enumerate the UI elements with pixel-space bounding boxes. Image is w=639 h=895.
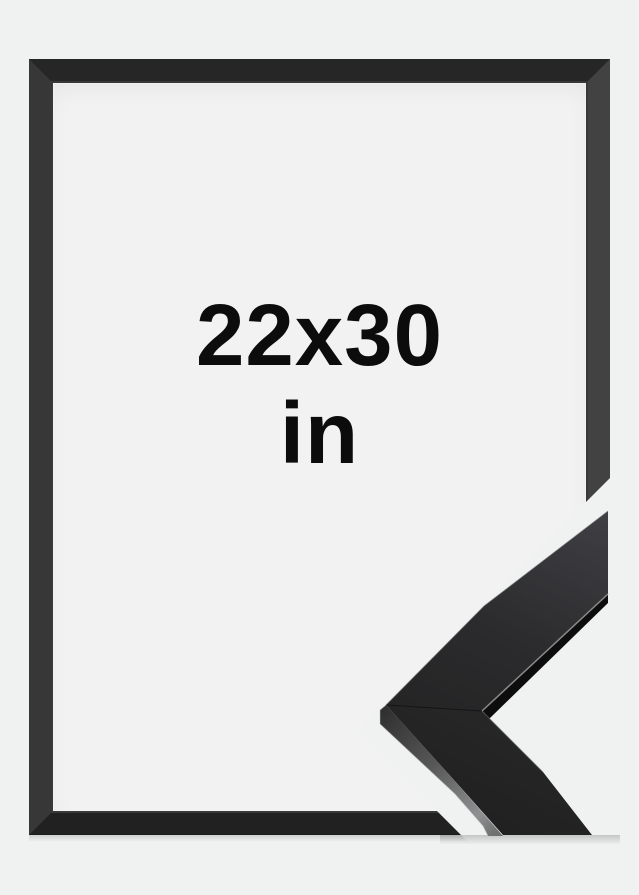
frame-drop-shadow: [29, 834, 610, 842]
product-image: 22x30 in: [0, 0, 639, 895]
size-caption: 22x30 in: [0, 287, 639, 483]
size-dimensions-text: 22x30: [0, 287, 639, 385]
size-unit-text: in: [0, 385, 639, 483]
